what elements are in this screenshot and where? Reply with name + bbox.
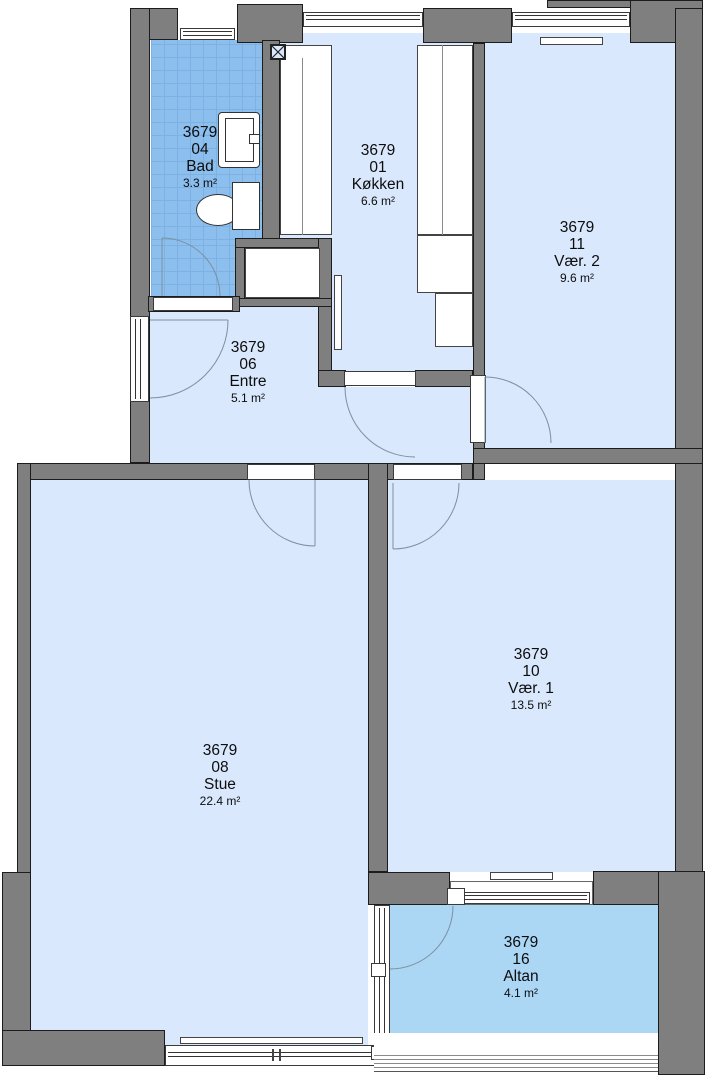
kitchen-counter-right-divider (442, 45, 443, 235)
room-label-kokken: 3679 01 Køkken 6.6 m² (323, 142, 433, 208)
room2-radiator (540, 37, 603, 45)
room-name: Vær. 1 (476, 680, 586, 697)
bathroom-floor-lower (151, 240, 235, 298)
balcony-railing (374, 1033, 658, 1072)
stue-radiator (180, 1037, 363, 1044)
bad-window (180, 28, 235, 40)
room-label-stue: 3679 08 Stue 22.4 m² (165, 742, 275, 808)
room-number: 04 (145, 141, 255, 158)
bad-door-opening (153, 297, 233, 311)
room-number: 16 (466, 951, 576, 968)
wall-top-pier-mid (423, 8, 512, 43)
wall-balcony-block-left (368, 872, 450, 905)
wall-bottom-left-corner (2, 1030, 165, 1066)
room-number: 10 (476, 663, 586, 680)
room-project-number: 3679 (145, 124, 255, 141)
ventilation-shaft-icon (270, 44, 286, 60)
kitchen-window (303, 12, 423, 27)
room-area: 6.6 m² (323, 194, 433, 208)
wall-left-lower-thick (2, 872, 31, 1034)
room-name: Vær. 2 (522, 253, 632, 270)
room-label-vaer2: 3679 11 Vær. 2 9.6 m² (522, 219, 632, 285)
wall-niche-bottom (235, 298, 332, 307)
room-area: 9.6 m² (522, 271, 632, 285)
room-project-number: 3679 (165, 742, 275, 759)
room-project-number: 3679 (522, 219, 632, 236)
room-project-number: 3679 (466, 934, 576, 951)
niche-closet (245, 248, 320, 298)
room2-window (512, 12, 630, 27)
wall-stue-room1-divider (368, 463, 388, 872)
room-project-number: 3679 (193, 339, 303, 356)
room-label-altan: 3679 16 Altan 4.1 m² (466, 934, 576, 1000)
wall-bad-kitchen (262, 40, 280, 240)
balcony-door-frame (447, 888, 465, 905)
room-number: 11 (522, 236, 632, 253)
wall-top-pier-bad-kitchen (237, 4, 303, 43)
wall-room2-bottom (473, 448, 703, 464)
room-label-vaer1: 3679 10 Vær. 1 13.5 m² (476, 646, 586, 712)
wall-kitchen-left-lower (318, 238, 332, 387)
room-name: Entre (193, 373, 303, 390)
room1-radiator (490, 872, 553, 880)
room1-window (455, 892, 590, 904)
room-project-number: 3679 (476, 646, 586, 663)
floor-plan: 3679 04 Bad 3.3 m² 3679 01 Køkken 6.6 m²… (0, 0, 707, 1080)
room-area: 3.3 m² (145, 176, 255, 190)
kitchen-radiator (334, 275, 342, 350)
room2-door-opening (470, 375, 486, 443)
room-label-bad: 3679 04 Bad 3.3 m² (145, 124, 255, 190)
room-area: 22.4 m² (165, 794, 275, 808)
room-number: 06 (193, 356, 303, 373)
room-number: 01 (323, 159, 433, 176)
room1-door-opening (393, 464, 462, 480)
stue-window-mullion (279, 1049, 281, 1061)
room-area: 13.5 m² (476, 698, 586, 712)
room-area: 4.1 m² (466, 986, 576, 1000)
entrance-door-opening (130, 316, 149, 402)
kitchen-appliance (417, 235, 473, 293)
room-name: Altan (466, 968, 576, 985)
room-name: Køkken (323, 176, 433, 193)
wall-balcony-right (658, 871, 705, 1075)
entre-corridor-floor (332, 387, 473, 463)
room-name: Bad (145, 158, 255, 175)
wall-kitchen-room2-partition (473, 43, 485, 377)
balcony-glazing-joint (371, 963, 386, 977)
stue-door-opening (247, 464, 315, 480)
room-label-entre: 3679 06 Entre 5.1 m² (193, 339, 303, 405)
room-number: 08 (165, 759, 275, 776)
stue-window-mullion (272, 1049, 274, 1061)
kitchen-door-opening (344, 371, 416, 386)
wall-kitchen-bottom-left (318, 370, 346, 387)
room-area: 5.1 m² (193, 391, 303, 405)
wall-kitchen-bottom-right (415, 370, 473, 387)
kitchen-cabinet (435, 293, 473, 347)
room-project-number: 3679 (323, 142, 433, 159)
room-name: Stue (165, 776, 275, 793)
stue-window-band (165, 1045, 388, 1066)
wall-left-lower (17, 463, 31, 875)
kitchen-counter-left-divider (302, 58, 303, 235)
